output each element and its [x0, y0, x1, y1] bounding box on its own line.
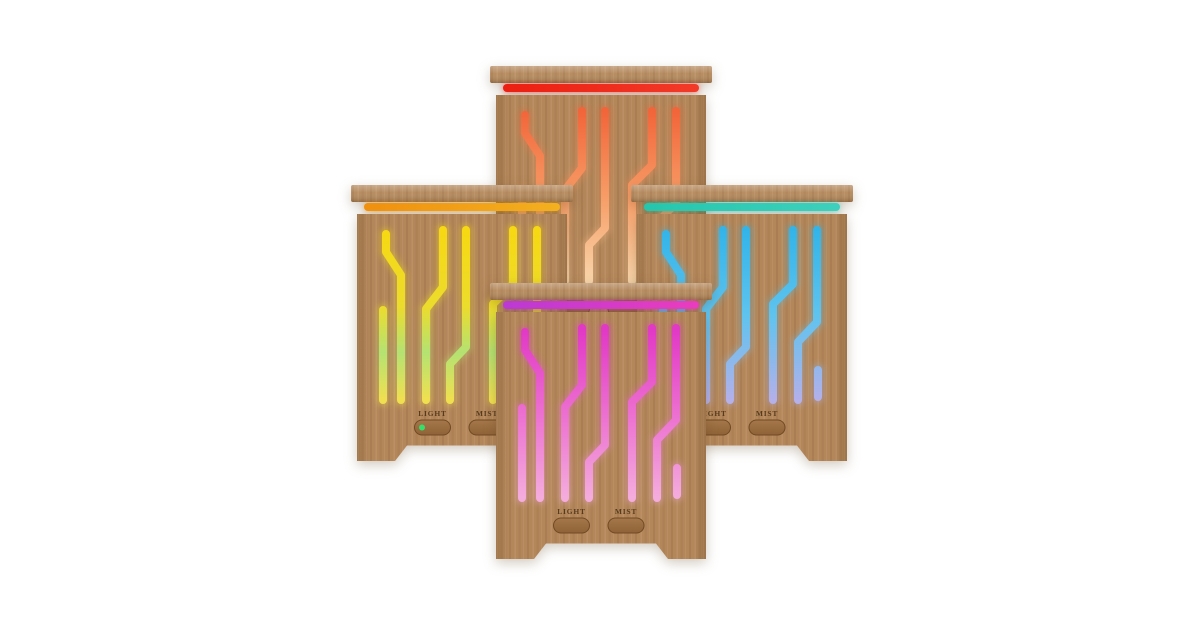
led-strip [364, 203, 560, 211]
mist-label: MIST [756, 409, 778, 418]
led-strip [503, 84, 699, 92]
lid-shading [631, 185, 853, 202]
led-strip [644, 203, 840, 211]
light-label: LIGHT [418, 409, 447, 418]
light-button [554, 518, 590, 533]
diffuser-magenta: LIGHT MIST [490, 283, 712, 564]
lid-shading [351, 185, 573, 202]
power-led-dot [419, 425, 425, 431]
mist-button [749, 420, 785, 435]
mist-button [608, 518, 644, 533]
mist-label: MIST [615, 507, 637, 516]
lid-shading [490, 66, 712, 83]
light-label: LIGHT [557, 507, 586, 516]
led-strip [503, 301, 699, 309]
lid-shading [490, 283, 712, 300]
product-photo: LIGHT MIST [0, 0, 1200, 630]
